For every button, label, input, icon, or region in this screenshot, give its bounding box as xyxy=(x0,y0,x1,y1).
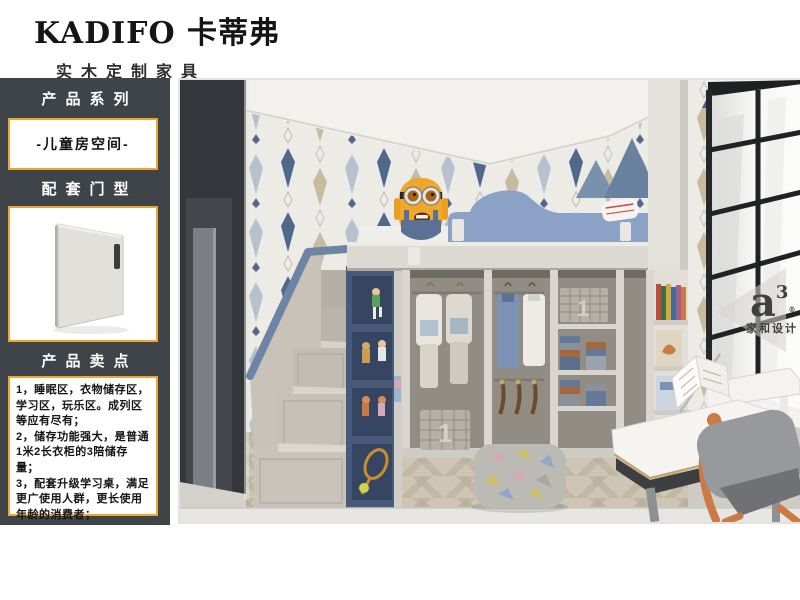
basket-number: 1 xyxy=(438,418,452,448)
door-type-header: 配套门型 xyxy=(0,178,170,199)
door-handle xyxy=(114,244,120,269)
room-render: 1 xyxy=(180,80,800,522)
display-shelf-unit xyxy=(346,266,402,518)
info-sidebar: 产品系列 -儿童房空间- 配套门型 产品卖点 1，睡眠区，衣物储存区，学习区，玩… xyxy=(0,78,170,525)
doorway-wall xyxy=(180,80,249,522)
basket-number: 1 xyxy=(577,296,589,321)
patterned-pouf xyxy=(472,444,568,513)
product-poster: KADIFO 卡蒂弗 实木定制家具 产品系列 -儿童房空间- 配套门型 产品卖点… xyxy=(0,0,800,600)
selling-points-box: 1，睡眠区，衣物储存区，学习区，玩乐区。成列区等应有尽有； 2，储存功能强大，是… xyxy=(8,376,158,516)
laundry-basket: 1 xyxy=(420,410,470,450)
room-photo: 1 xyxy=(178,78,800,524)
stair-step xyxy=(293,340,348,394)
series-header: 产品系列 xyxy=(0,88,170,109)
wire-basket: 1 xyxy=(560,288,608,322)
books xyxy=(656,284,686,320)
toy-box xyxy=(656,330,682,366)
door-type-box xyxy=(8,206,158,342)
series-box: -儿童房空间- xyxy=(8,118,158,170)
selling-point: 1，睡眠区，衣物储存区，学习区，玩乐区。成列区等应有尽有； xyxy=(16,383,150,430)
stair-step xyxy=(278,386,348,452)
series-value: -儿童房空间- xyxy=(36,134,129,154)
door-panel-image xyxy=(13,212,153,336)
brand-header: KADIFO 卡蒂弗 实木定制家具 xyxy=(34,8,280,82)
stair-step xyxy=(254,443,348,510)
tennis-ball xyxy=(359,483,369,493)
selling-point: 3，配套升级学习桌，满足更广使用人群，更长使用年龄的消费者； xyxy=(16,477,150,524)
selling-points-header: 产品卖点 xyxy=(0,350,170,371)
bed-platform xyxy=(347,242,692,270)
watermark-name: 家和设计 xyxy=(746,321,798,335)
brand-logo: KADIFO 卡蒂弗 xyxy=(34,8,280,52)
selling-point: 2，储存功能强大，是普通1米2长衣柜的3陪储存量； xyxy=(16,430,150,477)
